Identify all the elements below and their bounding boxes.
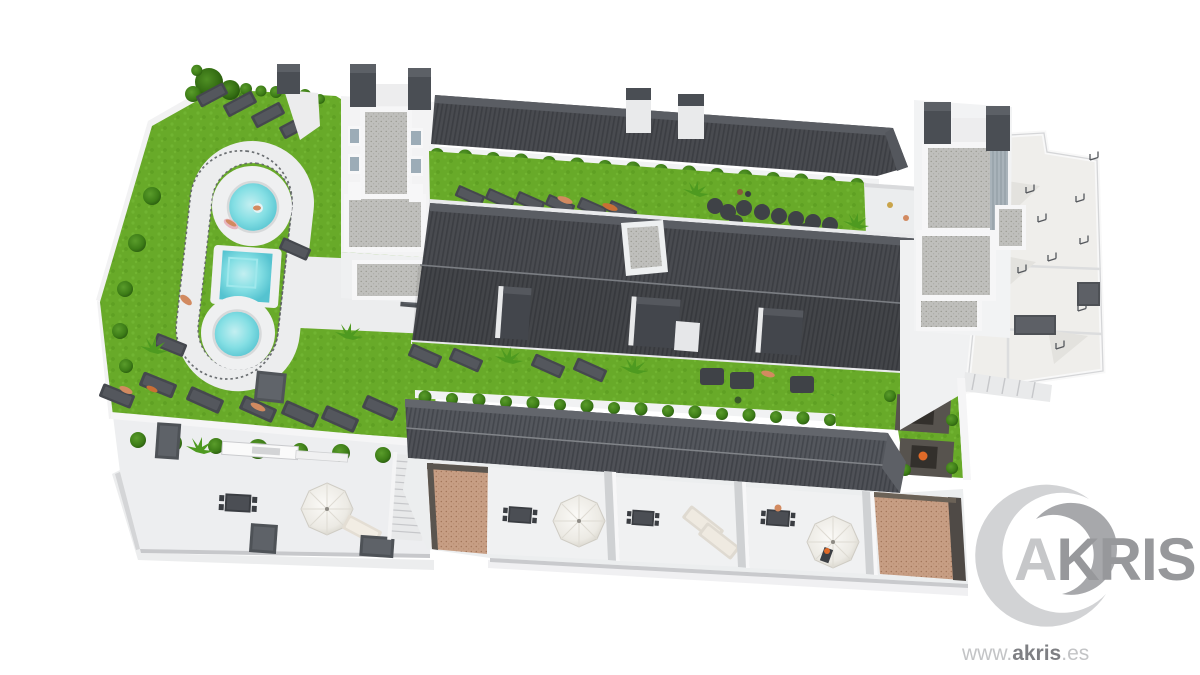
- svg-text:AKRIS: AKRIS: [1014, 526, 1196, 593]
- svg-text:www.akris.es: www.akris.es: [961, 642, 1089, 665]
